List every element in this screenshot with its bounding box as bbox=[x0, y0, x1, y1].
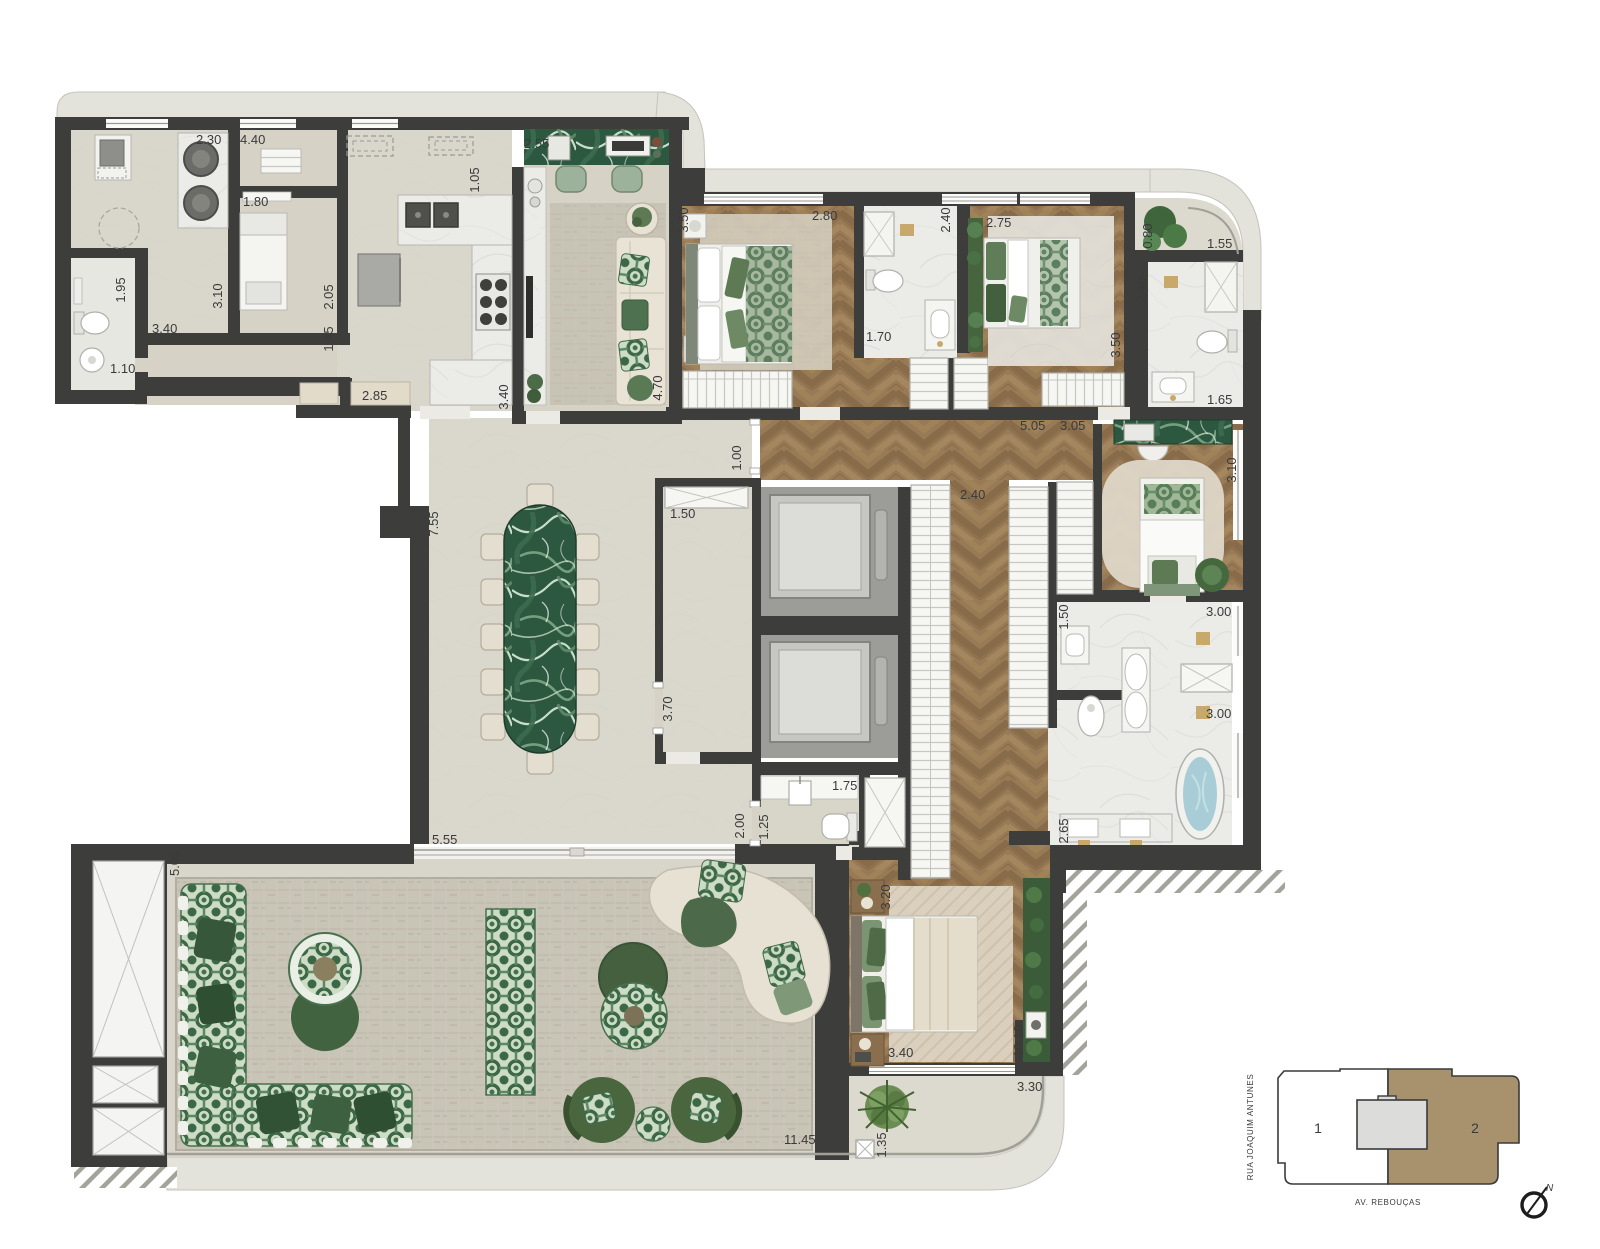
svg-text:3.40: 3.40 bbox=[888, 1045, 913, 1060]
svg-text:0.80: 0.80 bbox=[1140, 223, 1155, 248]
svg-text:3.00: 3.00 bbox=[1206, 604, 1231, 619]
svg-text:5.05: 5.05 bbox=[1020, 418, 1045, 433]
svg-text:7.55: 7.55 bbox=[426, 511, 441, 536]
svg-text:3.40: 3.40 bbox=[496, 384, 511, 409]
svg-text:2: 2 bbox=[1471, 1120, 1479, 1136]
svg-text:2.00: 2.00 bbox=[732, 813, 747, 838]
svg-text:AV. REBOUÇAS: AV. REBOUÇAS bbox=[1355, 1198, 1421, 1207]
svg-text:3.05: 3.05 bbox=[1060, 418, 1085, 433]
svg-text:3.00: 3.00 bbox=[1206, 706, 1231, 721]
svg-text:11.45: 11.45 bbox=[784, 1132, 816, 1147]
svg-text:2.55: 2.55 bbox=[524, 136, 549, 151]
svg-text:1.95: 1.95 bbox=[113, 277, 128, 302]
svg-text:1.80: 1.80 bbox=[243, 194, 268, 209]
svg-text:2.75: 2.75 bbox=[986, 215, 1011, 230]
svg-text:3.40: 3.40 bbox=[152, 321, 177, 336]
svg-text:2.85: 2.85 bbox=[362, 388, 387, 403]
svg-text:2.05: 2.05 bbox=[321, 284, 336, 309]
svg-text:2.80: 2.80 bbox=[812, 208, 837, 223]
svg-text:2.30: 2.30 bbox=[196, 132, 221, 147]
svg-text:3.10: 3.10 bbox=[1224, 457, 1239, 482]
svg-text:3.20: 3.20 bbox=[878, 884, 893, 909]
svg-text:3.70: 3.70 bbox=[660, 696, 675, 721]
svg-text:5.55: 5.55 bbox=[432, 832, 457, 847]
svg-text:N: N bbox=[1546, 1183, 1554, 1194]
svg-text:4.70: 4.70 bbox=[650, 375, 665, 400]
svg-text:1: 1 bbox=[1314, 1120, 1322, 1136]
svg-text:2.40: 2.40 bbox=[938, 207, 953, 232]
svg-text:4.40: 4.40 bbox=[240, 132, 265, 147]
svg-text:1.75: 1.75 bbox=[832, 778, 857, 793]
svg-text:1.50: 1.50 bbox=[1056, 604, 1071, 629]
svg-text:1.05: 1.05 bbox=[467, 167, 482, 192]
svg-text:3.50: 3.50 bbox=[676, 207, 691, 232]
svg-text:RUA JOAQUIM ANTUNES: RUA JOAQUIM ANTUNES bbox=[1246, 1074, 1255, 1181]
svg-text:1.55: 1.55 bbox=[1207, 236, 1232, 251]
svg-text:2.40: 2.40 bbox=[960, 487, 985, 502]
svg-text:5.05: 5.05 bbox=[167, 851, 182, 876]
svg-text:3.10: 3.10 bbox=[210, 283, 225, 308]
svg-text:3.30: 3.30 bbox=[1017, 1079, 1042, 1094]
svg-text:3.50: 3.50 bbox=[1108, 332, 1123, 357]
svg-text:2.65: 2.65 bbox=[1056, 818, 1071, 843]
svg-text:1.10: 1.10 bbox=[110, 361, 135, 376]
svg-text:1.00: 1.00 bbox=[729, 445, 744, 470]
svg-text:1.35: 1.35 bbox=[874, 1132, 889, 1157]
svg-text:1.50: 1.50 bbox=[670, 506, 695, 521]
svg-text:1.70: 1.70 bbox=[866, 329, 891, 344]
svg-text:1.45: 1.45 bbox=[321, 326, 336, 351]
svg-text:2.40: 2.40 bbox=[1134, 277, 1149, 302]
svg-text:1.65: 1.65 bbox=[1207, 392, 1232, 407]
svg-text:1.25: 1.25 bbox=[756, 814, 771, 839]
svg-text:10.10: 10.10 bbox=[1011, 1025, 1026, 1058]
